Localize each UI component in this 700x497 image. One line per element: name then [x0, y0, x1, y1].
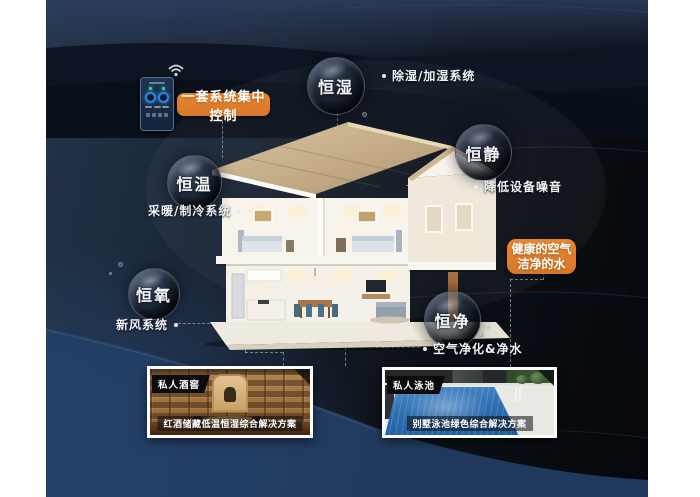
pool-photo: 私人泳池 别墅泳池绿色综合解决方案: [385, 370, 554, 435]
decor-bubble: [478, 332, 484, 338]
infographic-page: 一套系统集中控制 健康的空气 洁净的水 恒湿 恒静 恒温 恒氧 恒净: [0, 0, 700, 497]
bubble-label: 恒氧: [136, 282, 172, 306]
panel-dial-icons: [144, 92, 170, 103]
bubble-label: 恒温: [176, 171, 212, 195]
healthy-line2: 洁净的水: [511, 257, 571, 272]
wine-cellar-card: 私人酒窖 红酒储藏低温恒湿综合解决方案: [147, 366, 313, 438]
wifi-icon: [167, 62, 185, 78]
pool-ladder-icon: [515, 388, 517, 402]
pool-tag: 私人泳池: [387, 376, 445, 394]
bubble-label: 恒净: [434, 308, 470, 332]
bubble-constant-humidity: 恒湿: [307, 57, 365, 115]
central-control-label: 一套系统集中控制: [177, 93, 270, 116]
cellar-vase: [224, 387, 237, 402]
wine-cellar-tag: 私人酒窖: [152, 375, 210, 393]
bullet-dot: [382, 74, 386, 78]
central-control-text: 一套系统集中控制: [177, 86, 270, 124]
wine-cellar-caption: 红酒储藏低温恒湿综合解决方案: [157, 416, 302, 431]
note-text: 降低设备噪音: [484, 178, 562, 195]
healthy-air-water-label: 健康的空气 洁净的水: [507, 239, 576, 274]
note-fresh-air: 新风系统: [116, 316, 178, 333]
decor-bubble: [118, 262, 123, 267]
note-text: 除湿/加湿系统: [392, 67, 475, 84]
corner-ribbon-icon: [294, 369, 310, 385]
bubble-constant-quiet: 恒静: [455, 124, 512, 181]
panel-title-bar: [149, 82, 165, 84]
bullet-dot: [237, 209, 241, 213]
pool-card: 私人泳池 别墅泳池绿色综合解决方案: [382, 367, 557, 438]
note-heating-cooling: 采暖/制冷系统: [148, 202, 241, 219]
pool-caption: 别墅泳池绿色综合解决方案: [406, 416, 532, 431]
wine-cellar-photo: 私人酒窖 红酒储藏低温恒湿综合解决方案: [150, 369, 310, 435]
panel-status-lights: [144, 87, 170, 90]
note-text: 新风系统: [116, 316, 168, 333]
note-noise-reduction: 降低设备噪音: [474, 178, 562, 195]
note-text: 采暖/制冷系统: [148, 202, 231, 219]
smart-control-panel[interactable]: [140, 77, 174, 131]
decor-bubble: [362, 112, 367, 117]
bubble-label: 恒静: [465, 141, 501, 165]
pool-ladder-icon: [519, 388, 521, 402]
decor-bubble: [487, 326, 490, 329]
panel-readouts: [145, 106, 169, 108]
dark-canvas: 一套系统集中控制 健康的空气 洁净的水 恒湿 恒静 恒温 恒氧 恒净: [46, 0, 648, 497]
panel-buttons: [144, 113, 170, 117]
bullet-dot: [423, 347, 427, 351]
cellar-top-shadow: [150, 369, 310, 376]
bubble-constant-oxygen: 恒氧: [128, 268, 180, 320]
note-humidity-system: 除湿/加湿系统: [382, 67, 475, 84]
corner-ribbon-icon: [538, 370, 554, 386]
decor-bubble: [109, 272, 112, 275]
note-text: 空气净化&净水: [433, 340, 522, 357]
pool-plant: [516, 375, 528, 384]
note-air-water-purification: 空气净化&净水: [423, 340, 522, 357]
healthy-line1: 健康的空气: [511, 242, 571, 257]
bullet-dot: [174, 323, 178, 327]
bullet-dot: [474, 185, 478, 189]
bubble-label: 恒湿: [318, 74, 354, 98]
